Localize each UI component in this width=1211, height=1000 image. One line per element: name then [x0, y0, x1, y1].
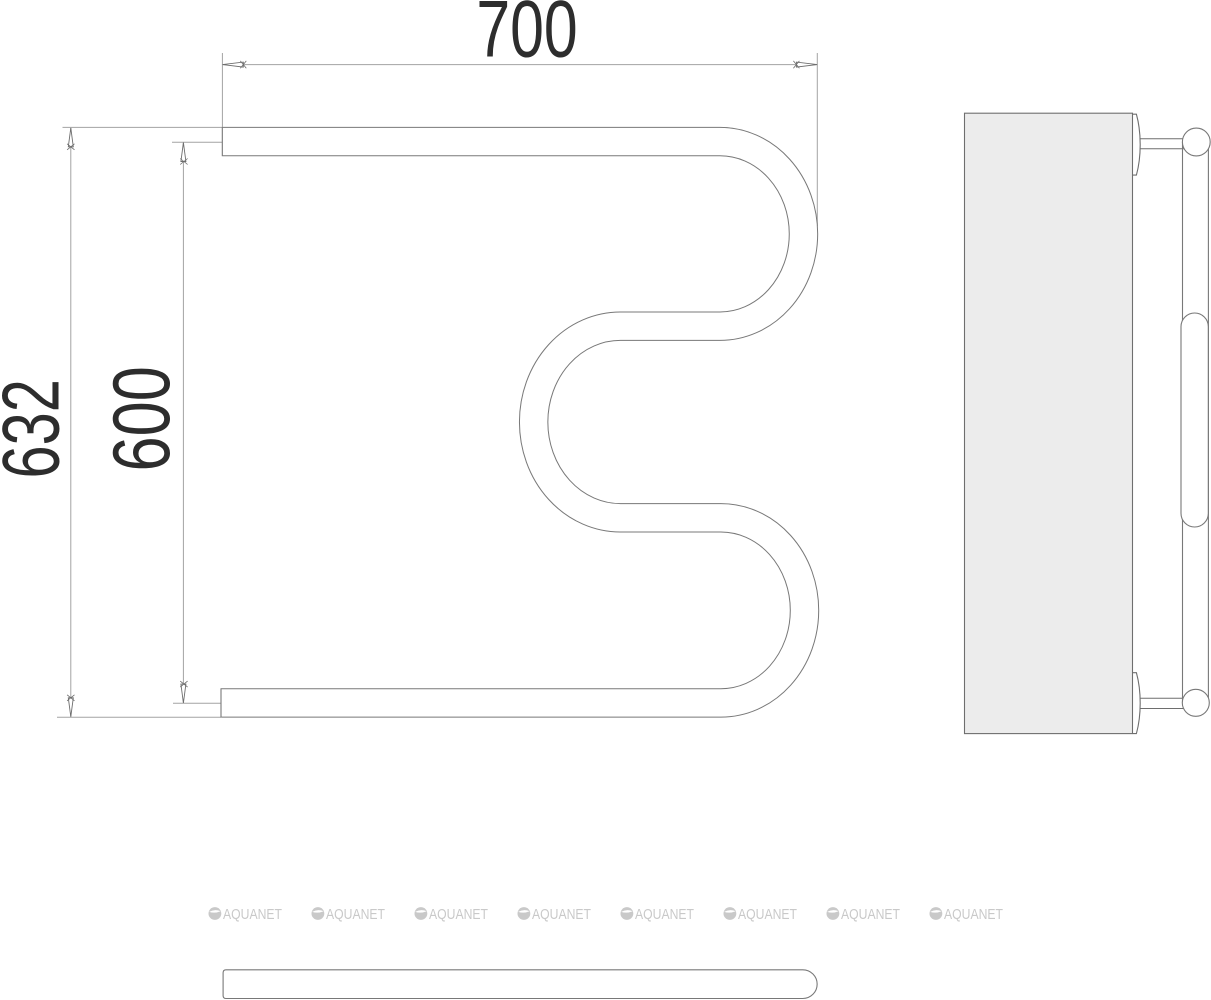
svg-text:632: 632 [0, 379, 77, 478]
svg-text:AQUANET: AQUANET [223, 906, 282, 923]
svg-text:600: 600 [97, 366, 187, 471]
svg-text:700: 700 [476, 0, 577, 75]
